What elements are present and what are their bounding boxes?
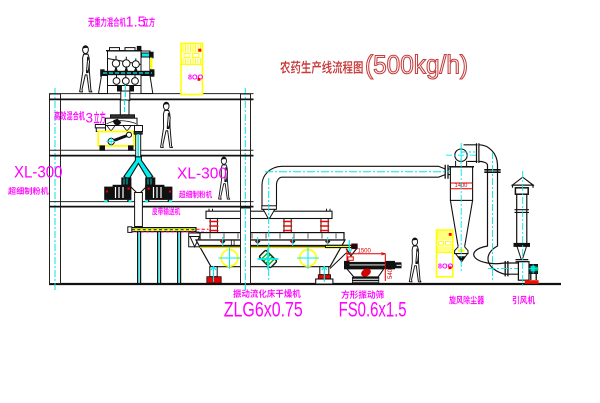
svg-text:FS0.6x1.5: FS0.6x1.5 xyxy=(339,298,407,322)
svg-text:1500: 1500 xyxy=(358,249,372,255)
svg-text:540: 540 xyxy=(388,268,394,279)
svg-text:3: 3 xyxy=(86,111,94,126)
svg-text:XL-300: XL-300 xyxy=(14,164,63,182)
svg-text:8OO: 8OO xyxy=(188,73,204,82)
svg-text:ZLG6x0.75: ZLG6x0.75 xyxy=(224,298,303,322)
svg-text:8OO: 8OO xyxy=(438,262,454,271)
svg-text:1.5: 1.5 xyxy=(126,15,146,31)
svg-text:XL-300: XL-300 xyxy=(177,166,227,183)
svg-text:(500kg/h): (500kg/h) xyxy=(365,52,468,80)
